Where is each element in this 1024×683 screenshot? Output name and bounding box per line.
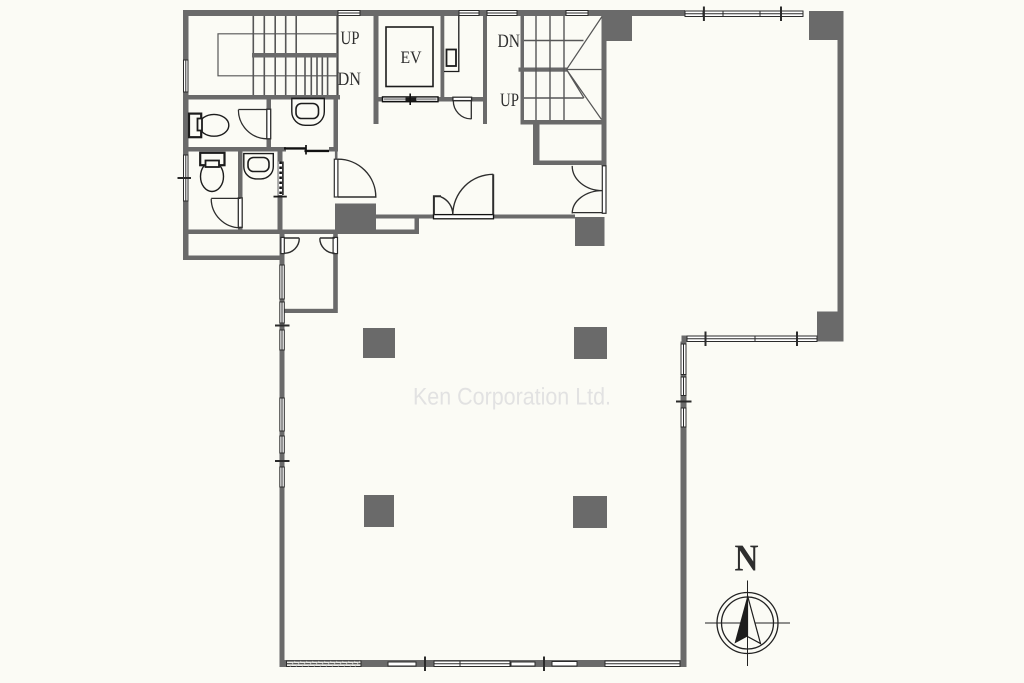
svg-text:N: N [735,538,759,580]
svg-text:EV: EV [401,47,422,67]
svg-text:DN: DN [498,31,521,52]
svg-text:Ken Corporation Ltd.: Ken Corporation Ltd. [413,384,611,411]
svg-text:DN: DN [338,69,362,90]
svg-text:UP: UP [341,28,360,49]
svg-text:UP: UP [500,90,519,111]
